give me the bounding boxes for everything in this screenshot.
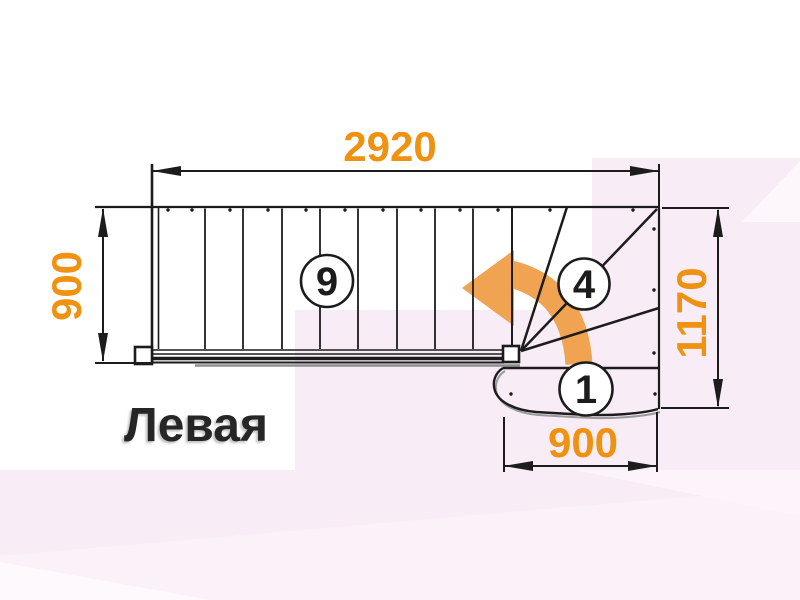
dimension-top-width: 2920	[343, 126, 436, 168]
step-label-first: 1	[575, 370, 597, 410]
stair-plan-diagram: 2920 900 1170 900 Левая 9 4 1	[0, 0, 800, 600]
newel-post-right	[503, 346, 519, 362]
dimension-left-height: 900	[46, 251, 88, 321]
newel-post-left	[135, 347, 152, 364]
dimension-right-height: 1170	[671, 267, 713, 358]
dimension-bottom-width: 900	[548, 422, 618, 464]
step-label-winder: 4	[573, 265, 595, 305]
orientation-label: Левая	[124, 402, 268, 450]
step-label-straight: 9	[316, 262, 338, 302]
